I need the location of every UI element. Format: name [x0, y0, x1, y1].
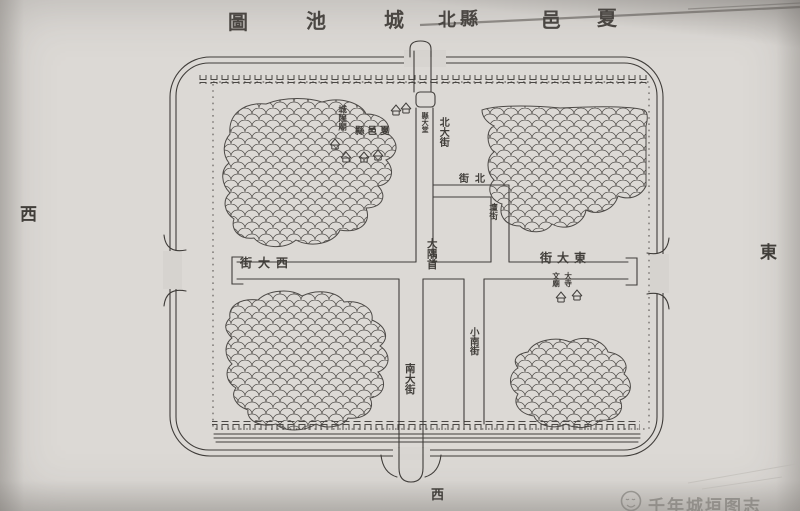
place-label-temple-right: 大寺 [564, 272, 572, 287]
pond-northeast [482, 106, 647, 232]
watermark-text: 千年城垣图志 [648, 492, 762, 511]
place-label-city-god-temple: 城隍廟 [337, 105, 346, 131]
watermark-logo-icon [622, 492, 641, 511]
photographed-map-page: 圖 池 城 北 縣 邑 夏 西 東 西 北大街 縣大堂 大隅首 街北 壇街 街大… [0, 0, 800, 511]
street-label-south-main: 南大街 [404, 363, 415, 395]
place-label-temple-left: 文廟 [552, 272, 560, 287]
photo-scratch-lines [688, 464, 796, 489]
place-label-county-hall: 縣大堂 [422, 112, 429, 133]
historical-map-drawing [0, 0, 800, 511]
title-char: 城 [384, 4, 404, 33]
street-label-east-main: 街大東 [540, 252, 591, 264]
compass-bottom-label: 西 [431, 489, 444, 502]
title-char: 縣 [460, 5, 478, 31]
street-label-north-main: 北大街 [437, 117, 447, 147]
street-label-north-street: 街北 [459, 175, 491, 185]
title-char: 圖 [228, 6, 248, 35]
street-label-small-south: 小南街 [468, 327, 478, 356]
street-label-altar-street: 壇街 [488, 203, 497, 220]
pond-southwest [226, 291, 388, 430]
title-char: 邑 [541, 4, 561, 33]
street-label-west-main: 街大西 [240, 257, 294, 269]
street-label-crossroads: 大隅首 [426, 238, 437, 270]
map-scene: 圖 池 城 北 縣 邑 夏 西 東 西 北大街 縣大堂 大隅首 街北 壇街 街大… [0, 0, 800, 511]
place-label-county-seat: 縣邑夏 [355, 127, 393, 137]
compass-east-label: 東 [760, 245, 777, 262]
title-char: 夏 [597, 2, 617, 31]
title-char: 北 [438, 6, 456, 32]
pond-northwest [223, 99, 396, 247]
compass-west-label: 西 [20, 207, 37, 224]
pond-southeast [511, 338, 631, 427]
title-char: 池 [306, 5, 326, 34]
